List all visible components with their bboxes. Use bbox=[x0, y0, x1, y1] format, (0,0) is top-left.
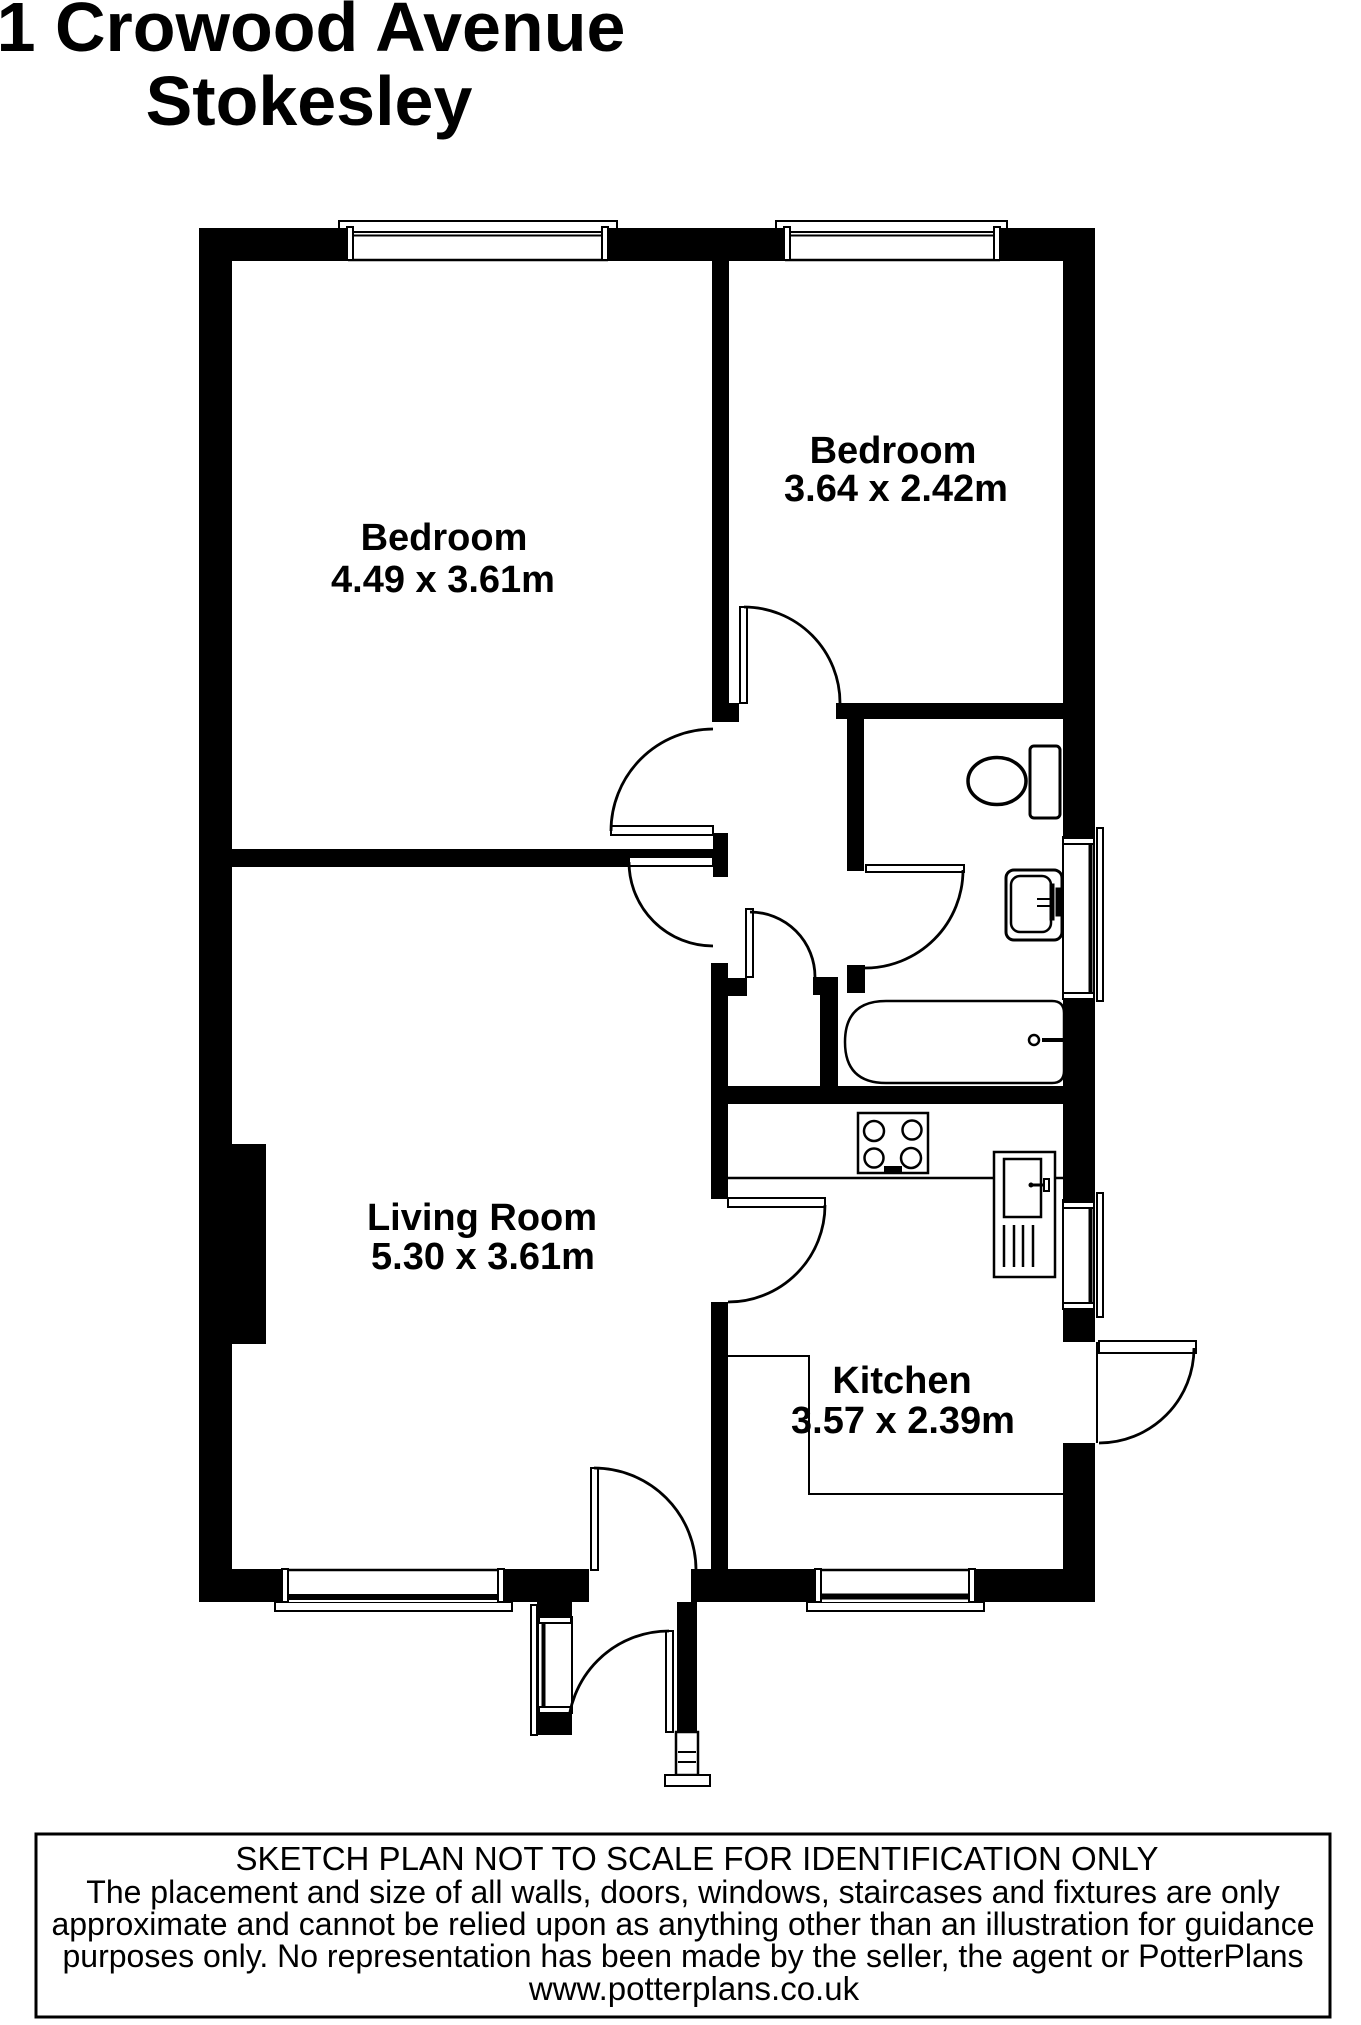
svg-text:Living Room: Living Room bbox=[367, 1197, 597, 1239]
svg-text:Bedroom: Bedroom bbox=[361, 517, 528, 559]
svg-text:approximate and cannot be reli: approximate and cannot be relied upon as… bbox=[51, 1906, 1314, 1942]
svg-text:Stokesley: Stokesley bbox=[146, 62, 473, 140]
svg-text:www.potterplans.co.uk: www.potterplans.co.uk bbox=[528, 1970, 860, 2007]
svg-text:The placement and size of all: The placement and size of all walls, doo… bbox=[86, 1874, 1279, 1910]
svg-text:5.30 x 3.61m: 5.30 x 3.61m bbox=[371, 1236, 595, 1278]
svg-text:SKETCH PLAN NOT TO SCALE FOR I: SKETCH PLAN NOT TO SCALE FOR IDENTIFICAT… bbox=[236, 1840, 1159, 1877]
svg-text:Kitchen: Kitchen bbox=[832, 1360, 971, 1402]
svg-text:4.49 x 3.61m: 4.49 x 3.61m bbox=[331, 559, 555, 601]
svg-text:1 Crowood Avenue: 1 Crowood Avenue bbox=[0, 0, 625, 66]
svg-text:Bedroom: Bedroom bbox=[810, 430, 977, 472]
svg-text:3.64 x 2.42m: 3.64 x 2.42m bbox=[784, 468, 1008, 510]
svg-text:3.57 x 2.39m: 3.57 x 2.39m bbox=[791, 1400, 1015, 1442]
svg-text:purposes only. No representati: purposes only. No representation has bee… bbox=[62, 1938, 1303, 1974]
